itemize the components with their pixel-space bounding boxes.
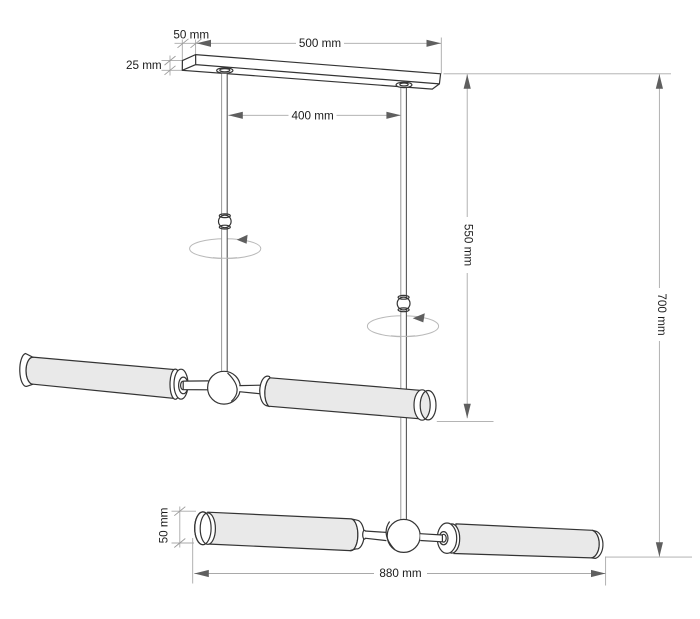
svg-text:50 mm: 50 mm [158,508,171,544]
svg-text:700 mm: 700 mm [655,293,668,335]
svg-text:50 mm: 50 mm [173,28,209,41]
svg-text:550 mm: 550 mm [461,224,474,266]
svg-text:400 mm: 400 mm [291,109,333,122]
svg-text:500 mm: 500 mm [299,37,341,50]
svg-text:25 mm: 25 mm [126,59,162,72]
svg-text:880 mm: 880 mm [379,567,421,580]
